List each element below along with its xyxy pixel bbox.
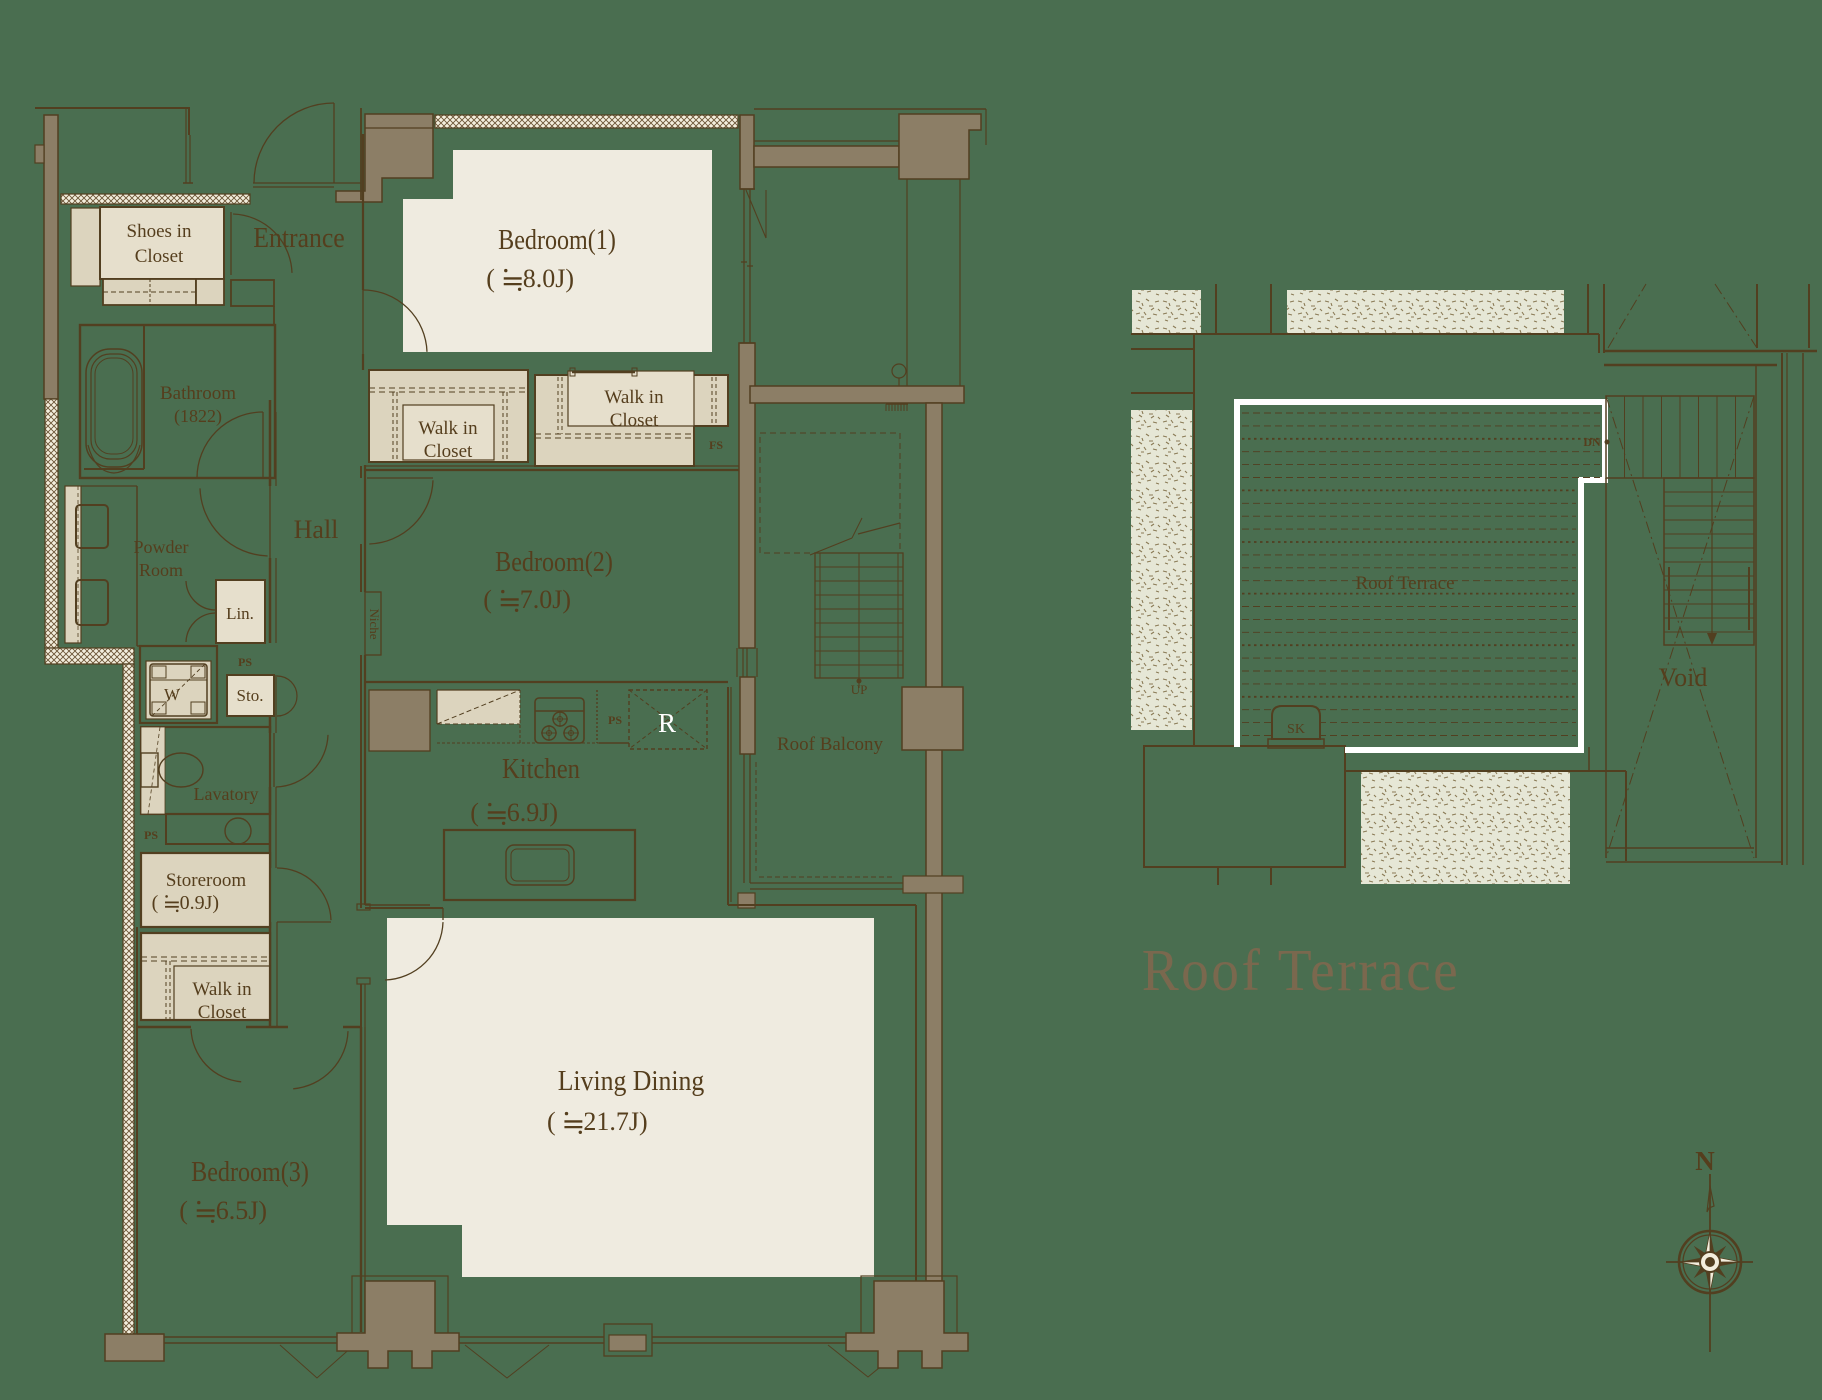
svg-text:(: ( <box>483 585 492 614</box>
svg-text:N: N <box>1695 1146 1715 1176</box>
svg-text:UP: UP <box>851 682 868 697</box>
svg-text:Niche: Niche <box>367 608 382 639</box>
svg-text:6.9J): 6.9J) <box>507 798 558 827</box>
svg-text:R: R <box>658 708 676 738</box>
svg-text:Walk in: Walk in <box>418 418 478 439</box>
svg-text:Walk in: Walk in <box>604 387 664 408</box>
svg-text:Closet: Closet <box>424 441 473 462</box>
svg-text:(1822): (1822) <box>174 406 222 427</box>
svg-text:Roof Terrace: Roof Terrace <box>1355 573 1454 594</box>
svg-text:PS: PS <box>608 713 622 727</box>
svg-text:Roof Terrace: Roof Terrace <box>1142 938 1460 1003</box>
svg-text:Living Dining: Living Dining <box>558 1065 705 1096</box>
svg-text:Room: Room <box>139 560 183 580</box>
svg-text:(: ( <box>547 1107 556 1136</box>
svg-text:Powder: Powder <box>134 537 189 557</box>
svg-text:Void: Void <box>1659 663 1708 692</box>
svg-text:Kitchen: Kitchen <box>502 754 580 785</box>
svg-text:Walk in: Walk in <box>192 979 252 1000</box>
svg-text:(: ( <box>179 1196 188 1225</box>
svg-text:Lin.: Lin. <box>226 604 254 623</box>
svg-text:FS: FS <box>709 438 723 452</box>
svg-text:Bedroom(1): Bedroom(1) <box>498 224 616 255</box>
svg-text:21.7J): 21.7J) <box>583 1107 647 1136</box>
svg-text:Storeroom: Storeroom <box>166 870 246 891</box>
svg-text:Sto.: Sto. <box>237 686 264 705</box>
svg-text:SK: SK <box>1287 722 1305 737</box>
svg-text:Closet: Closet <box>135 246 184 267</box>
svg-text:W: W <box>164 685 181 704</box>
svg-text:(: ( <box>486 264 495 293</box>
svg-text:0.9J): 0.9J) <box>180 892 219 914</box>
svg-text:Shoes in: Shoes in <box>127 221 192 242</box>
svg-text:Closet: Closet <box>198 1002 247 1023</box>
svg-text:Bedroom(2): Bedroom(2) <box>495 546 613 577</box>
svg-text:7.0J): 7.0J) <box>520 585 571 614</box>
svg-text:PS: PS <box>144 828 158 842</box>
svg-text:PS: PS <box>238 655 252 669</box>
svg-text:Hall: Hall <box>294 515 339 544</box>
svg-text:Entrance: Entrance <box>253 222 345 253</box>
svg-text:6.5J): 6.5J) <box>216 1196 267 1225</box>
svg-text:Bedroom(3): Bedroom(3) <box>191 1156 309 1187</box>
svg-text:(: ( <box>470 798 479 827</box>
svg-text:DN: DN <box>1583 435 1601 449</box>
svg-text:(: ( <box>152 892 159 914</box>
svg-text:Bathroom: Bathroom <box>160 383 236 404</box>
svg-text:8.0J): 8.0J) <box>523 264 574 293</box>
svg-text:Lavatory: Lavatory <box>194 784 259 804</box>
svg-text:Closet: Closet <box>610 410 659 431</box>
svg-text:Roof Balcony: Roof Balcony <box>777 734 884 755</box>
